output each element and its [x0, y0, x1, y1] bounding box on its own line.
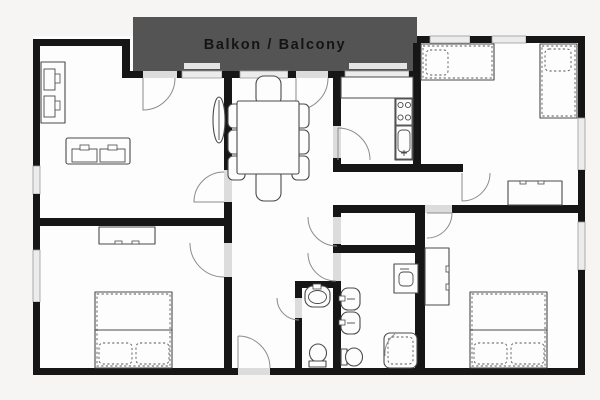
door-opening — [425, 205, 452, 213]
wall-segment — [578, 170, 585, 222]
sofa — [66, 138, 130, 164]
window — [578, 118, 585, 170]
wall-segment — [578, 270, 585, 375]
toilet — [309, 344, 327, 367]
radiator — [213, 97, 225, 143]
wall-segment — [470, 36, 492, 43]
wardrobe — [425, 248, 449, 305]
wall-segment — [33, 39, 40, 166]
wall-segment — [33, 368, 238, 375]
wall-segment — [40, 218, 224, 226]
wall-segment — [526, 36, 585, 43]
wall-segment — [33, 39, 130, 46]
single-bed — [540, 44, 577, 118]
wall-segment — [177, 71, 182, 78]
balcony-label: Balkon / Balcony — [204, 37, 346, 53]
window-sill — [184, 63, 220, 69]
window — [33, 250, 40, 302]
wall-segment — [417, 36, 430, 43]
wall-segment — [333, 71, 341, 126]
door-opening — [143, 71, 177, 78]
washbasin — [339, 288, 360, 310]
window — [578, 222, 585, 270]
wall-segment — [333, 164, 463, 172]
wall-shelf — [41, 62, 65, 123]
wall-segment — [333, 213, 341, 217]
wall-segment — [222, 71, 240, 78]
door-opening — [333, 217, 341, 244]
door-opening — [333, 253, 341, 281]
door-opening — [295, 298, 302, 318]
wall-segment — [33, 194, 40, 250]
wall-segment — [270, 368, 585, 375]
window — [182, 71, 222, 78]
double-bed — [95, 292, 172, 368]
door-opening — [296, 71, 328, 78]
toilet — [341, 348, 363, 366]
dining-table — [237, 101, 299, 174]
wall-segment — [224, 277, 232, 375]
wall-segment — [452, 205, 578, 213]
floor-plan-drawing: Balkon / Balcony — [0, 0, 600, 400]
door-opening — [238, 368, 270, 375]
wall-segment — [578, 36, 585, 118]
wall-segment — [295, 318, 302, 368]
wall-segment — [288, 71, 296, 78]
balcony: Balkon / Balcony — [133, 17, 417, 71]
wall-segment — [333, 205, 421, 213]
wall-segment — [333, 245, 423, 253]
wall-segment — [33, 302, 40, 375]
kitchen-counter — [341, 77, 413, 98]
floor-plan: Balkon / Balcony — [0, 0, 600, 400]
door-opening — [224, 243, 232, 277]
wall-segment — [224, 202, 232, 243]
wall-segment — [295, 281, 302, 298]
desk — [508, 181, 562, 205]
window-sill — [349, 63, 407, 69]
wall-segment — [122, 39, 130, 78]
corner-shower — [384, 333, 417, 368]
dresser — [99, 227, 155, 244]
wall-segment — [130, 71, 143, 78]
wall-segment — [413, 43, 421, 171]
window — [33, 166, 40, 194]
washbasin — [339, 312, 360, 334]
wall-segment — [333, 281, 341, 372]
window — [492, 36, 526, 43]
double-bed — [470, 292, 547, 368]
door-opening — [333, 126, 341, 158]
washbasin — [305, 284, 330, 307]
single-bed — [421, 44, 494, 80]
window — [430, 36, 470, 43]
washing-machine — [394, 264, 418, 293]
